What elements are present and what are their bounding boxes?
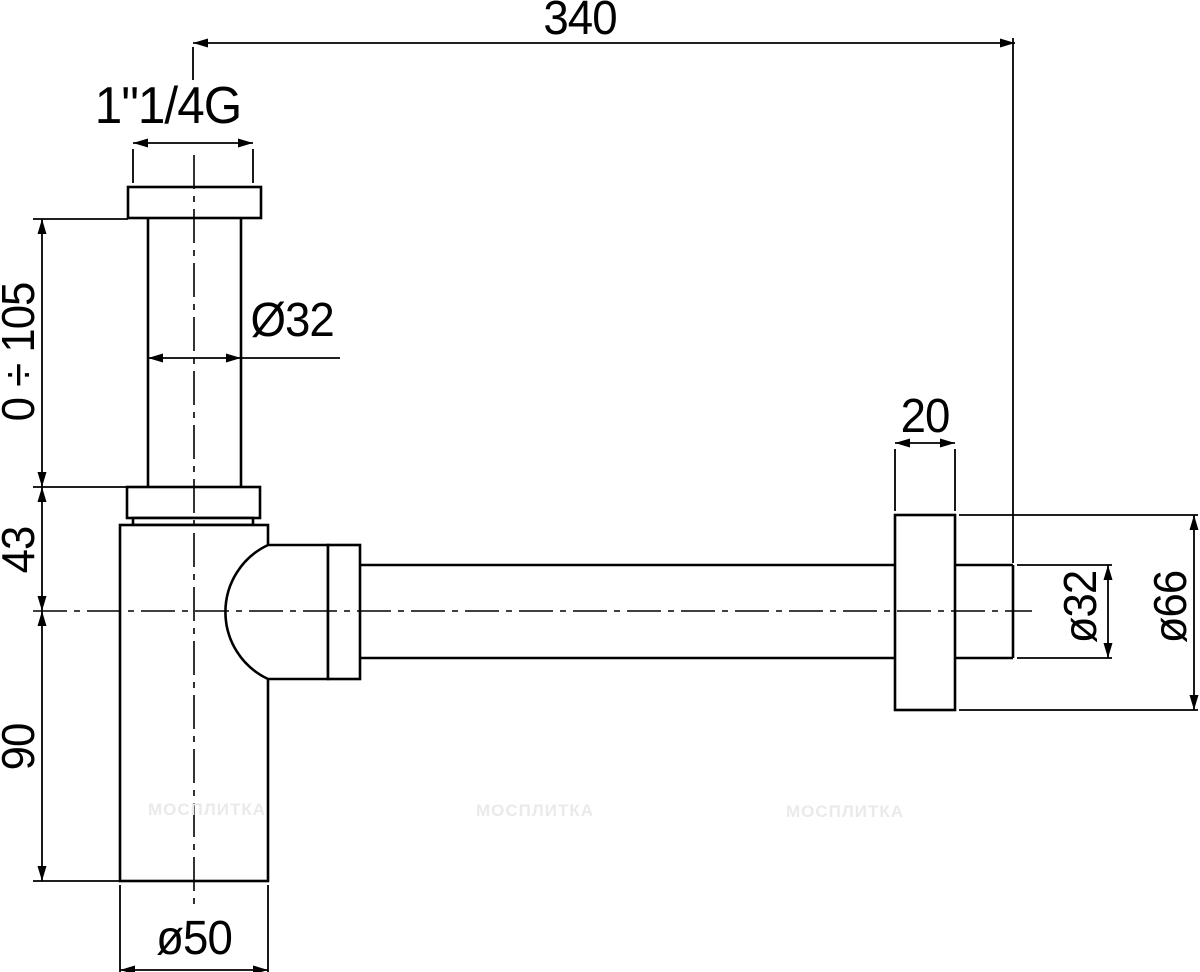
dimension-flange-thickness [895,439,955,512]
dimension-left-chain [33,219,128,881]
dim-label-adjustable-height: 0 ÷ 105 [0,229,38,476]
outlet-nut-outline [328,545,360,679]
dim-label-flange-thickness: 20 [868,393,982,441]
watermark-text: МОСПЛИТКА [476,802,594,819]
wall-flange-outline [895,515,955,710]
dim-label-span-340: 340 [485,0,675,43]
dimension-inlet-diameter [148,354,340,363]
dim-label-offset-43: 43 [0,503,38,598]
dim-label-inlet-diameter: Ø32 [251,297,384,345]
dim-label-outlet-diameter: ø32 [1060,541,1100,674]
technical-drawing-page: 340 1"1/4G Ø32 0 ÷ 105 43 90 ø50 20 ø32 … [0,0,1200,972]
watermark-text: МОСПЛИТКА [786,803,904,820]
dim-label-thread: 1"1/4G [73,80,263,132]
dim-label-body-height-90: 90 [0,700,38,795]
dim-label-body-diameter: ø50 [132,915,256,963]
elbow-outline [225,545,360,679]
dim-label-flange-diameter: ø66 [1150,541,1190,674]
watermark-text: МОСПЛИТКА [148,801,266,818]
drawing-canvas [0,0,1200,972]
dimension-thread [133,139,253,184]
